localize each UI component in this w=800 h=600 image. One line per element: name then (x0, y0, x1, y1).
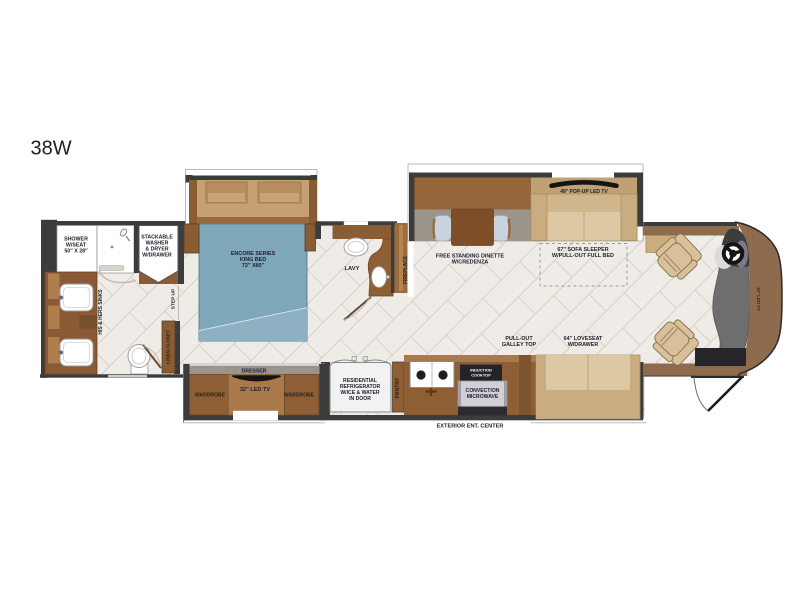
svg-text:W/CREDENZA: W/CREDENZA (452, 260, 489, 266)
svg-text:EXTERIOR ENT. CENTER: EXTERIOR ENT. CENTER (437, 424, 504, 430)
svg-text:32″ LED TV: 32″ LED TV (756, 287, 761, 311)
svg-text:HIS & HERS SINKS: HIS & HERS SINKS (98, 289, 104, 335)
svg-text:COOKTOP: COOKTOP (471, 373, 491, 378)
svg-text:LINEN CLOSET: LINEN CLOSET (166, 330, 171, 364)
svg-text:50″ X 28″: 50″ X 28″ (64, 249, 88, 255)
svg-text:PANTRY: PANTRY (395, 377, 401, 398)
svg-text:MICROWAVE: MICROWAVE (467, 394, 499, 400)
svg-text:IN DOOR: IN DOOR (349, 396, 371, 402)
svg-text:W/DRAWER: W/DRAWER (568, 342, 599, 348)
svg-text:FIREPLACE: FIREPLACE (403, 255, 409, 284)
svg-text:WARDROBE: WARDROBE (195, 393, 226, 399)
svg-text:STEP UP: STEP UP (171, 288, 177, 309)
svg-text:W/PULL-OUT FULL BED: W/PULL-OUT FULL BED (552, 253, 614, 259)
svg-text:GALLEY TOP: GALLEY TOP (502, 342, 537, 348)
svg-text:32″ LED TV: 32″ LED TV (240, 387, 271, 393)
svg-text:LAVY: LAVY (344, 266, 359, 272)
svg-text:W/DRAWER: W/DRAWER (142, 253, 172, 259)
svg-text:38W: 38W (31, 138, 72, 160)
svg-text:DRESSER: DRESSER (241, 369, 266, 375)
svg-text:72″ X80″: 72″ X80″ (242, 263, 265, 269)
svg-text:WARDROBE: WARDROBE (284, 393, 315, 399)
